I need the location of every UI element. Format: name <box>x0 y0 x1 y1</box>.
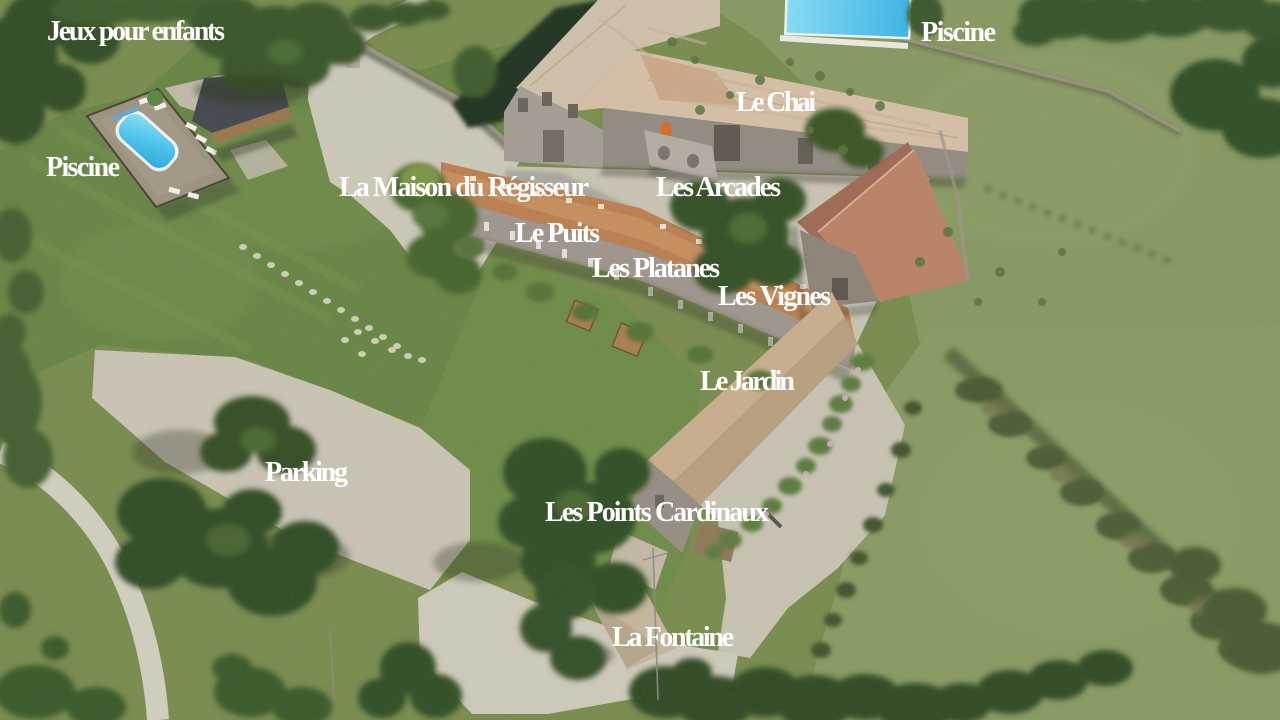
svg-text:Les Vignes: Les Vignes <box>718 281 831 312</box>
svg-text:Piscine: Piscine <box>921 17 996 48</box>
svg-text:La Maison du Régisseur: La Maison du Régisseur <box>339 172 589 203</box>
svg-text:Le Puits: Le Puits <box>515 218 600 249</box>
svg-text:Les Points Cardinaux: Les Points Cardinaux <box>545 497 769 528</box>
svg-text:Les Arcades: Les Arcades <box>656 172 781 203</box>
svg-text:La Fontaine: La Fontaine <box>612 622 734 653</box>
svg-text:Parking: Parking <box>265 457 348 488</box>
svg-text:Jeux pour enfants: Jeux pour enfants <box>47 16 225 47</box>
svg-text:Les Platanes: Les Platanes <box>592 253 720 284</box>
svg-text:Piscine: Piscine <box>46 152 120 183</box>
svg-text:Le Chai: Le Chai <box>736 87 816 118</box>
svg-text:Le Jardin: Le Jardin <box>700 366 795 397</box>
